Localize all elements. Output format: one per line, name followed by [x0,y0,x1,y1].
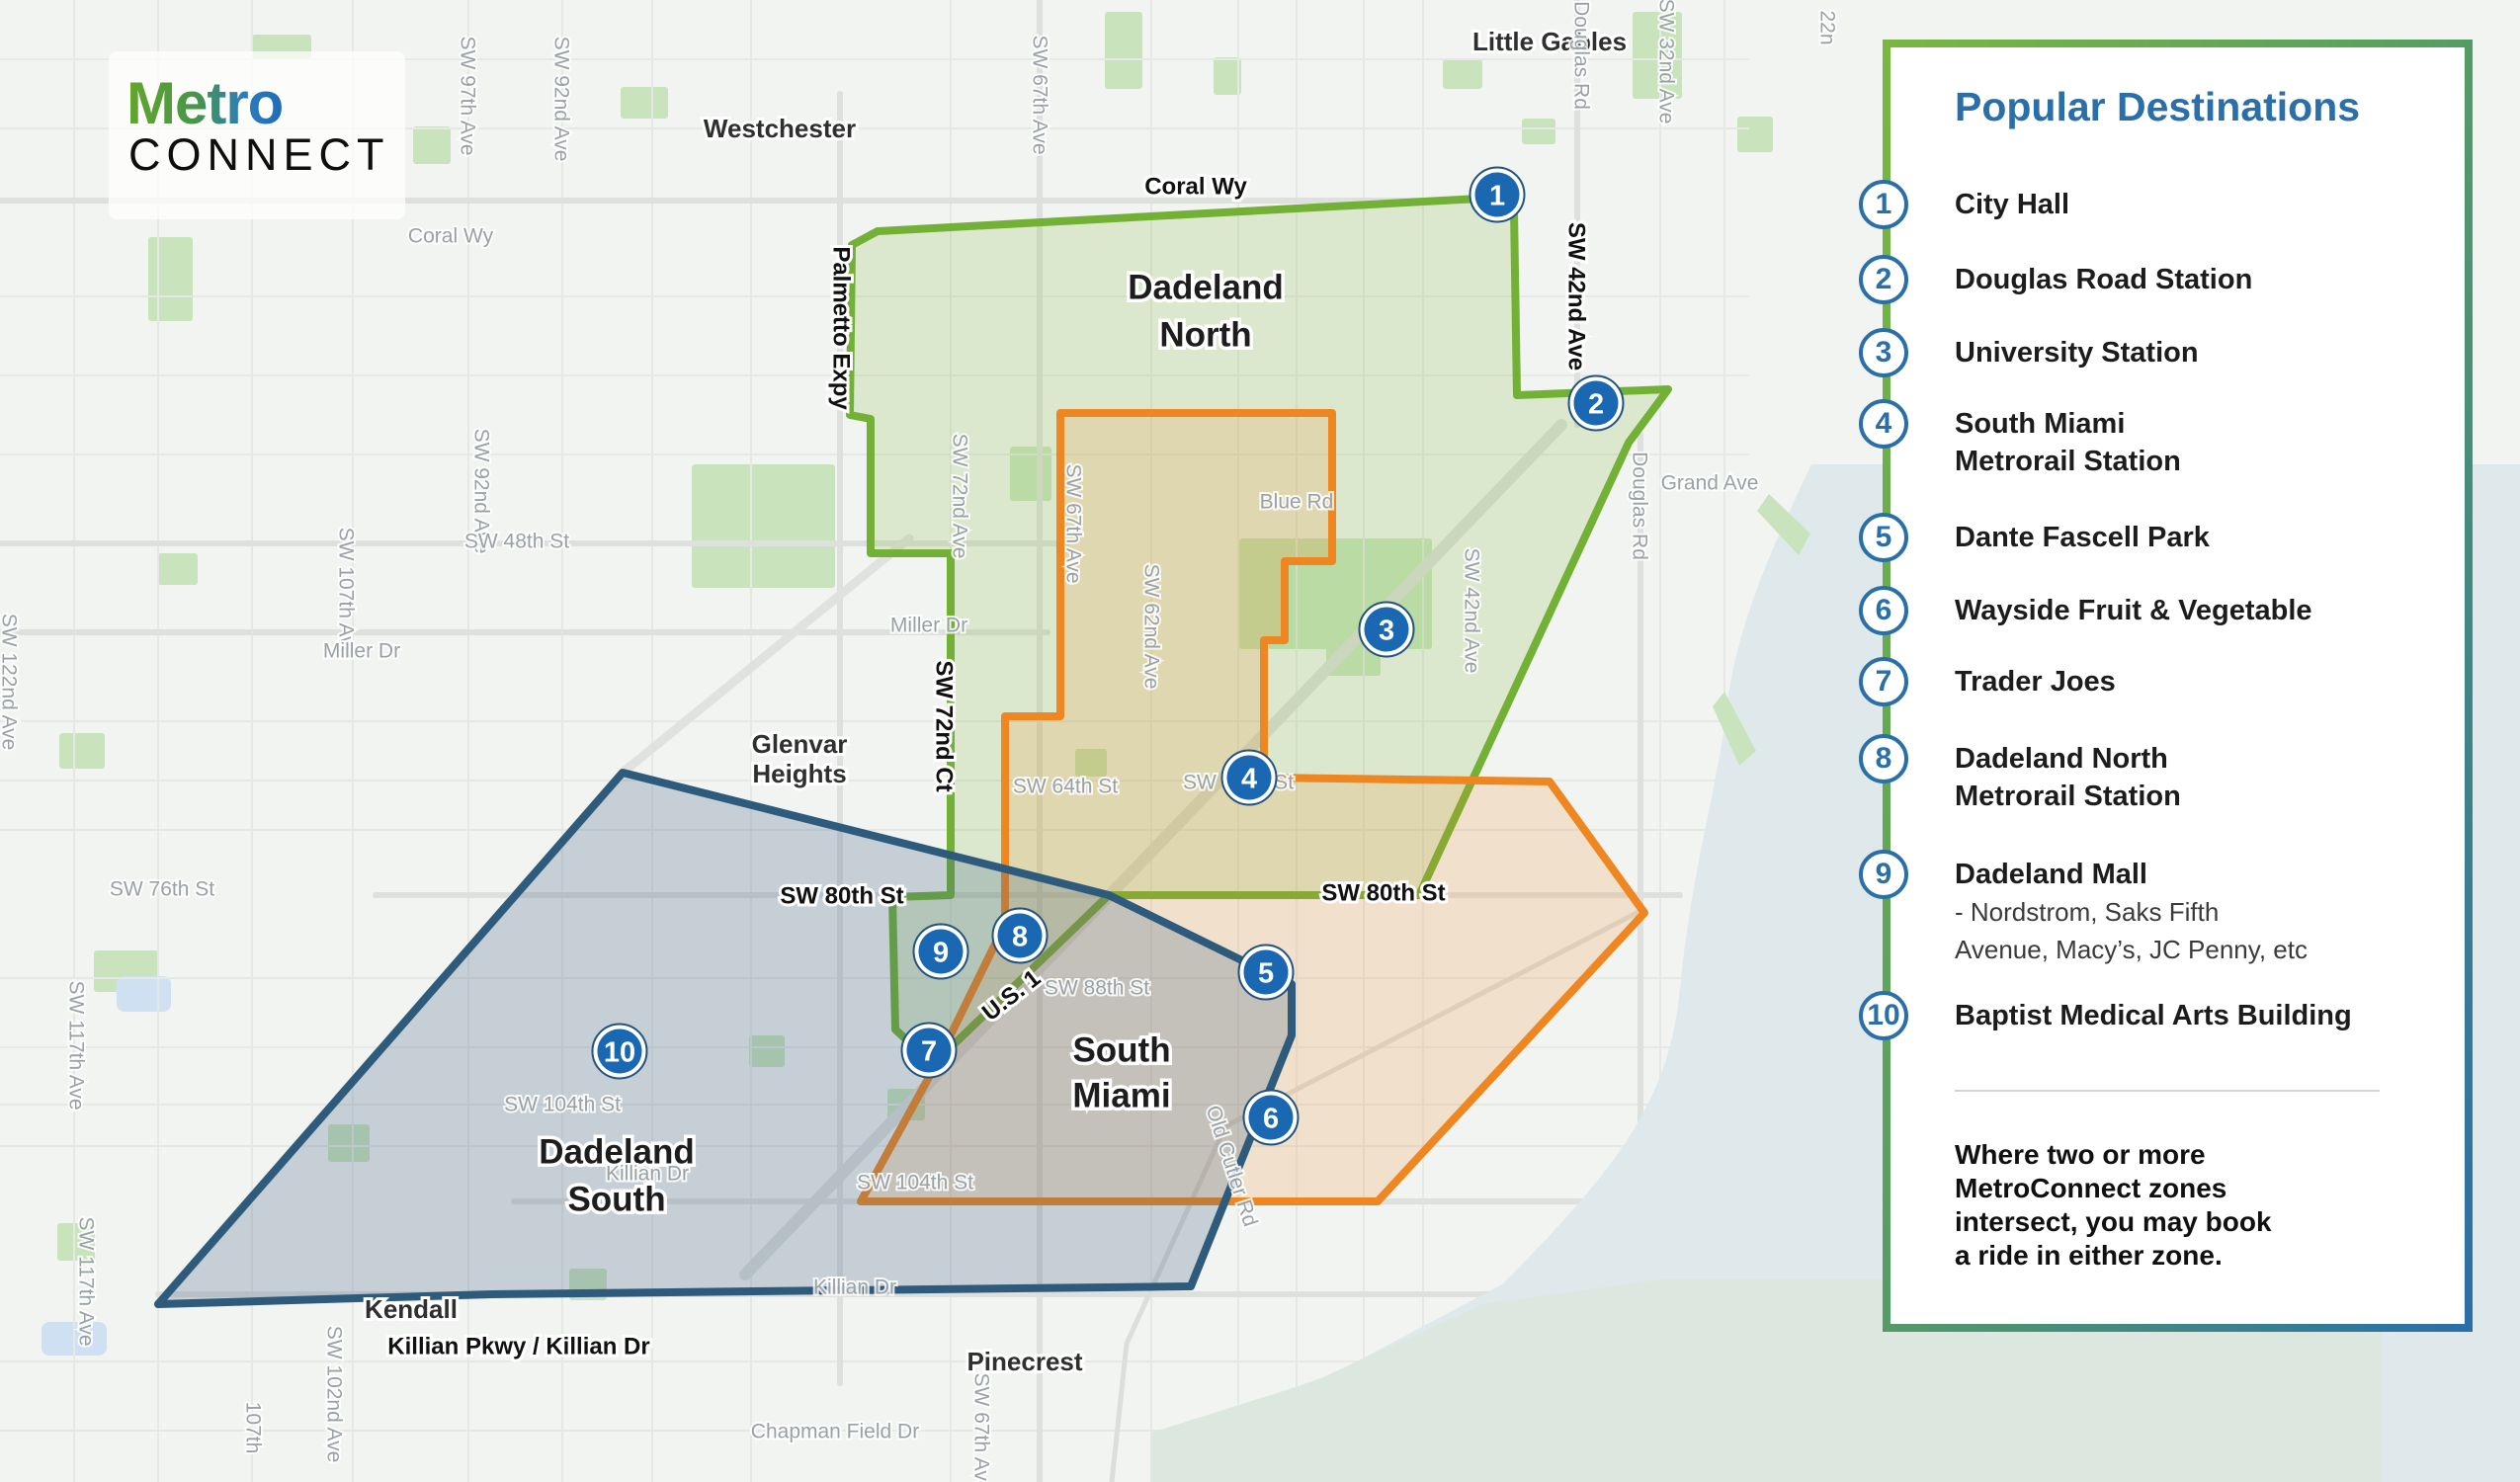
map-label: Douglas Rd [1629,452,1651,560]
marker-number: 6 [1263,1103,1279,1134]
marker-number: 9 [933,937,949,968]
map-label: North [1159,315,1251,354]
logo-text-metro: Metro [126,70,283,136]
map-label: Grand Ave [1661,471,1759,494]
park-patch-icon [59,733,105,769]
map-label: Blue Rd [1260,490,1334,513]
map-label: SW 64th St [1013,775,1118,797]
pond-icon [117,976,171,1012]
map-label: Miami [1072,1076,1170,1114]
marker-number: 4 [1241,763,1257,794]
destination-marker-9: 9 [914,925,968,979]
marker-number: 8 [1012,921,1028,952]
map-label: SW 48th St [464,530,569,552]
map-label: Douglas Rd [1570,1,1593,110]
map-label: SW 42nd Ave [1563,222,1590,370]
map-label: Coral Wy [408,224,494,247]
park-patch-icon [1737,117,1773,152]
park-patch-icon [692,464,835,588]
park-patch-icon [413,126,451,164]
map-label: Coral Wy [1144,173,1247,200]
map-label: SW 32nd Ave [1655,0,1678,123]
map-label: SW 62nd Ave [1140,564,1163,690]
map-label: SW 67th Ave [970,1372,993,1482]
marker-number: 1 [1489,180,1505,211]
map-label: Killian Pkwy / Killian Dr [387,1333,649,1359]
legend-panel [1883,40,2473,1332]
map-label: SW 122nd Ave [0,614,21,751]
map-label: Heights [752,759,846,788]
map-label: Westchester [704,114,856,143]
park-patch-icon [621,87,668,119]
destination-marker-6: 6 [1244,1091,1299,1145]
map-label: SW 80th St [1321,879,1445,906]
map-label: SW 97th Ave [457,36,479,155]
map-label: 22n [1816,10,1839,44]
destination-marker-4: 4 [1222,751,1277,805]
map-label: Kendall [365,1294,458,1324]
map-label: South [1072,1030,1170,1069]
map-label: Killian Dr [813,1276,896,1298]
map-label: 107th [242,1402,265,1454]
map-label: Killian Dr [606,1162,689,1185]
marker-number: 7 [921,1035,937,1067]
marker-number: 2 [1588,388,1604,420]
logo-text-connect: CONNECT [128,129,390,180]
map-label: Chapman Field Dr [751,1420,919,1442]
map-label: SW 104th St [504,1093,621,1115]
park-patch-icon [148,237,193,321]
metroconnect-zone-map: DadelandNorthSouthMiamiDadelandSouthWest… [0,0,2520,1482]
map-label: Palmetto Expy [828,246,855,410]
map-label: SW 76th St [110,877,214,900]
marker-number: 5 [1258,957,1274,989]
map-label: SW 92nd Ave [550,37,573,162]
park-patch-icon [1522,119,1555,144]
map-label: Miller Dr [890,614,967,636]
map-label: Dadeland [1128,268,1284,306]
destination-marker-5: 5 [1239,946,1294,1000]
destination-marker-2: 2 [1569,376,1624,431]
map-label: Miller Dr [323,639,400,662]
map-label: SW 117th Ave [75,1216,98,1346]
map-label: SW 117th Ave [65,980,88,1110]
park-patch-icon [1214,57,1241,95]
destination-marker-3: 3 [1360,603,1414,657]
map-label: South [567,1180,665,1218]
destination-marker-10: 10 [593,1025,647,1079]
map-label: SW 88th St [1045,976,1149,999]
map-label: SW 102nd Ave [323,1326,346,1463]
map-label: SW 72nd Ave [949,434,971,559]
map-label: SW 67th Ave [1029,35,1051,154]
destination-marker-7: 7 [902,1024,957,1078]
metroconnect-logo: Metro CONNECT [109,51,405,219]
map-label: SW 67th Ave [1062,463,1085,583]
map-label: SW 72nd Ct [931,660,958,791]
park-patch-icon [1105,12,1142,89]
marker-number: 10 [604,1036,635,1068]
map-label: SW 104th St [857,1171,973,1194]
map-label: SW 80th St [780,882,903,909]
destination-marker-8: 8 [993,909,1048,963]
park-patch-icon [158,553,198,585]
destination-marker-1: 1 [1470,168,1525,222]
map-label: Little Gables [1472,27,1627,56]
marker-number: 3 [1379,615,1394,646]
park-patch-icon [1443,59,1482,89]
map-label: Glenvar [752,729,848,759]
map-label: SW 42nd Ave [1461,548,1483,674]
